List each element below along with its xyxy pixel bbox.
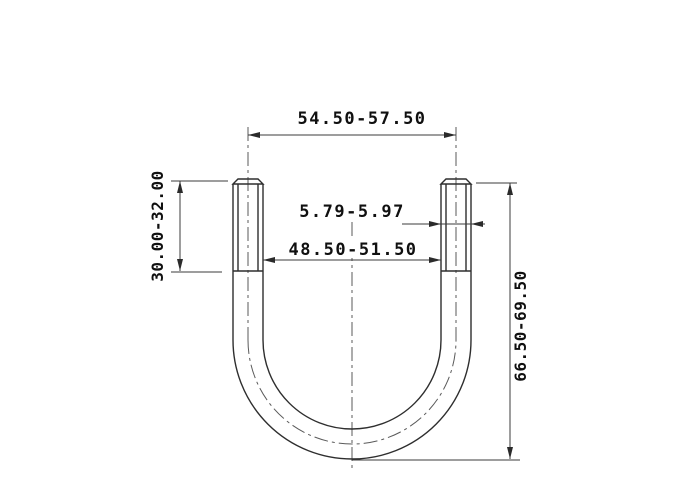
centerlines	[248, 127, 456, 472]
total-height-arrow-bottom	[507, 447, 513, 459]
rod-diameter-label: 5.79-5.97	[299, 202, 405, 222]
rod-diameter-arrow-right	[471, 221, 483, 227]
dimension-rod-diameter: 5.79-5.97	[299, 198, 485, 227]
dimension-inner-width: 48.50-51.50	[263, 238, 441, 263]
rod-diameter-arrow-left	[429, 221, 441, 227]
thread-length-label: 30.00-32.00	[148, 170, 167, 281]
u-bolt-technical-drawing: 54.50-57.50 5.79-5.97 48.50-51.50 30.00-…	[0, 0, 700, 500]
dimension-center-width: 54.50-57.50	[248, 109, 456, 138]
center-width-label: 54.50-57.50	[297, 109, 426, 129]
center-width-arrow-right	[444, 132, 456, 138]
inner-width-label: 48.50-51.50	[288, 240, 417, 260]
inner-width-arrow-right	[429, 257, 441, 263]
dimension-thread-length: 30.00-32.00	[148, 170, 228, 281]
total-height-arrow-top	[507, 183, 513, 195]
inner-width-arrow-left	[263, 257, 275, 263]
total-height-label: 66.50-69.50	[511, 270, 530, 381]
drawing-canvas: 54.50-57.50 5.79-5.97 48.50-51.50 30.00-…	[0, 0, 700, 500]
center-width-arrow-left	[248, 132, 260, 138]
thread-length-arrow-top	[177, 181, 183, 193]
thread-length-arrow-bottom	[177, 259, 183, 271]
